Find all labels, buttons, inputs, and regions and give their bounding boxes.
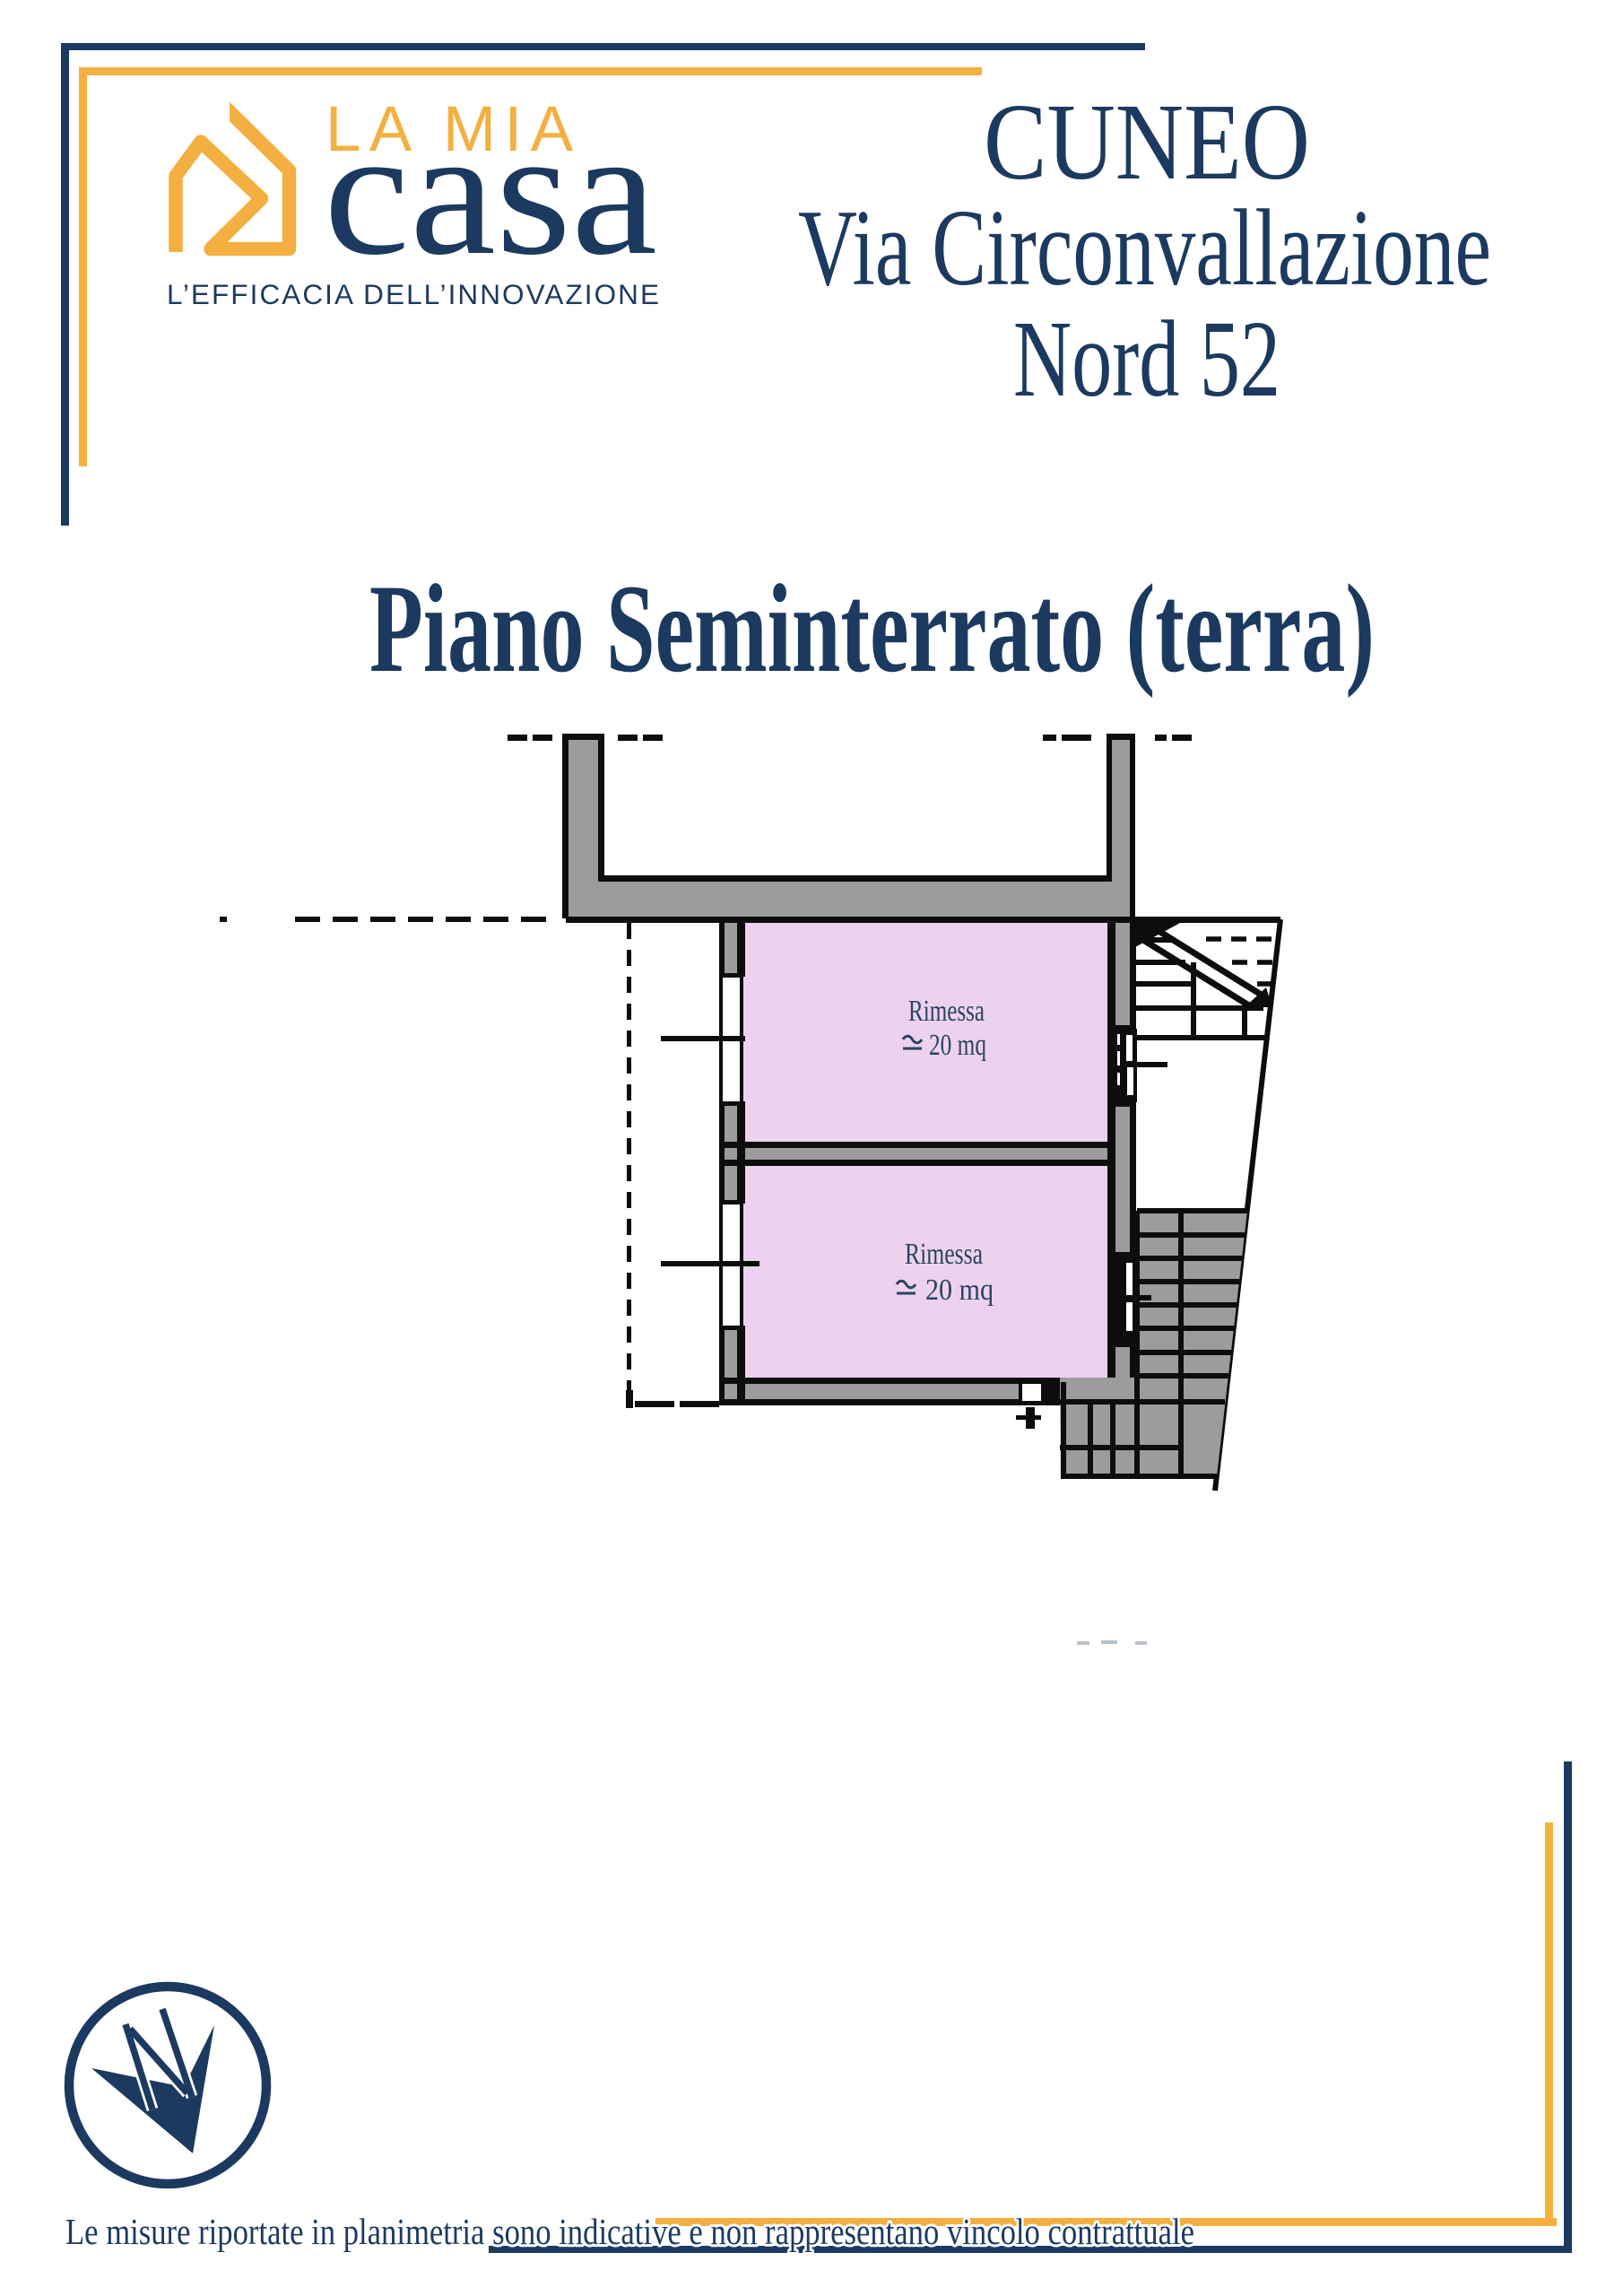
svg-text:Rimessa: Rimessa: [908, 995, 985, 1028]
svg-text:Nord 52: Nord 52: [1013, 299, 1280, 420]
svg-text:Le misure riportate in planime: Le misure riportate in planimetria sono …: [65, 2211, 1194, 2252]
svg-text:casa: casa: [324, 91, 657, 292]
svg-text:20 mq: 20 mq: [929, 1029, 986, 1062]
svg-text:Via Circonvallazione: Via Circonvallazione: [798, 187, 1491, 309]
svg-text:CUNEO: CUNEO: [984, 82, 1310, 203]
svg-text:Rimessa: Rimessa: [905, 1238, 983, 1271]
svg-text:L’EFFICACIA DELL’INNOVAZIONE: L’EFFICACIA DELL’INNOVAZIONE: [167, 278, 659, 310]
svg-text:Piano Seminterrato (terra): Piano Seminterrato (terra): [369, 559, 1375, 699]
svg-text:20 mq: 20 mq: [925, 1274, 994, 1307]
